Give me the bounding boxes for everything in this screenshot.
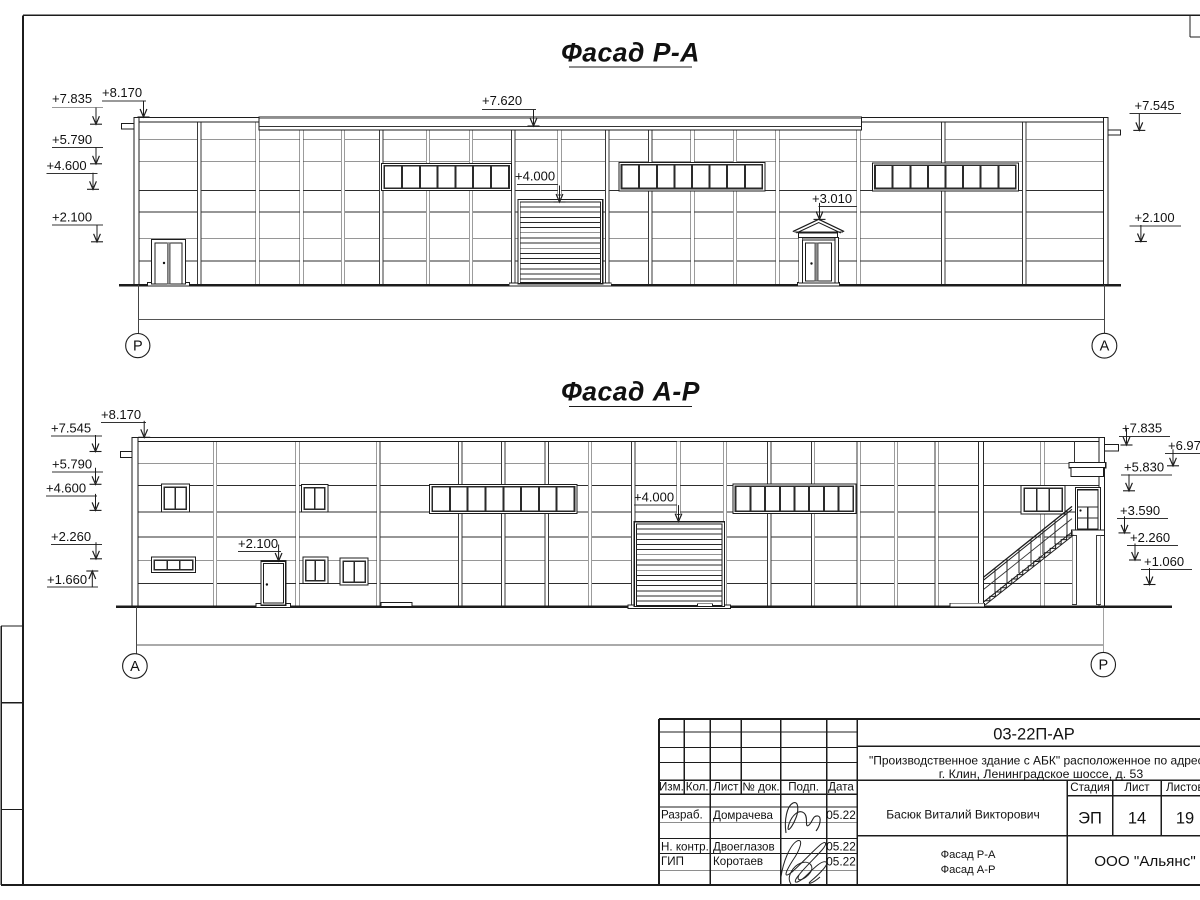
svg-text:Изм.: Изм. xyxy=(659,781,684,794)
svg-text:+4.000: +4.000 xyxy=(634,490,674,505)
svg-text:+3.010: +3.010 xyxy=(812,191,852,206)
svg-text:+2.100: +2.100 xyxy=(1135,210,1175,225)
svg-text:+5.790: +5.790 xyxy=(52,132,92,147)
svg-text:+7.545: +7.545 xyxy=(1135,98,1175,113)
svg-text:Стадия: Стадия xyxy=(1070,781,1110,794)
svg-text:05.22: 05.22 xyxy=(826,839,856,853)
svg-text:"Производственное здание с АБК: "Производственное здание с АБК" располож… xyxy=(869,754,1200,768)
svg-text:Фасад А-Р: Фасад А-Р xyxy=(941,864,996,876)
svg-text:Кол.: Кол. xyxy=(686,781,709,794)
svg-text:+7.545: +7.545 xyxy=(51,421,91,436)
svg-text:+7.835: +7.835 xyxy=(52,91,92,106)
svg-text:+7.835: +7.835 xyxy=(1122,421,1162,436)
svg-text:Листов: Листов xyxy=(1166,781,1200,794)
svg-text:Лист: Лист xyxy=(713,781,739,794)
svg-text:+5.830: +5.830 xyxy=(1124,460,1164,475)
svg-text:03-22П-АР: 03-22П-АР xyxy=(993,726,1075,744)
svg-text:+2.100: +2.100 xyxy=(238,536,278,551)
svg-text:+2.100: +2.100 xyxy=(52,210,92,225)
svg-text:Подп.: Подп. xyxy=(788,781,819,794)
svg-text:+4.600: +4.600 xyxy=(46,481,86,496)
svg-text:05.22: 05.22 xyxy=(826,855,856,869)
svg-text:г. Клин, Ленинградское шоссе,: г. Клин, Ленинградское шоссе, д. 53 xyxy=(939,767,1144,781)
svg-text:ГИП: ГИП xyxy=(661,855,684,868)
svg-text:19: 19 xyxy=(1176,810,1194,828)
svg-text:Фасад Р-А: Фасад Р-А xyxy=(941,849,996,861)
svg-text:ЭП: ЭП xyxy=(1078,810,1102,828)
svg-text:А: А xyxy=(130,659,140,675)
svg-text:Р: Р xyxy=(133,339,143,355)
svg-text:+3.590: +3.590 xyxy=(1120,503,1160,518)
svg-text:+8.170: +8.170 xyxy=(102,85,142,100)
svg-text:Разраб.: Разраб. xyxy=(661,808,703,821)
svg-text:+4.000: +4.000 xyxy=(515,169,555,184)
svg-text:Р: Р xyxy=(1098,658,1108,674)
svg-text:+1.060: +1.060 xyxy=(1144,554,1184,569)
svg-text:+1.660: +1.660 xyxy=(47,572,87,587)
svg-text:Фасад Р-А: Фасад Р-А xyxy=(561,38,700,68)
svg-text:+2.260: +2.260 xyxy=(1130,530,1170,545)
svg-text:Лист: Лист xyxy=(1124,781,1150,794)
svg-text:Дата: Дата xyxy=(828,781,854,794)
svg-text:05.22: 05.22 xyxy=(826,808,856,822)
svg-text:№ док.: № док. xyxy=(742,781,779,794)
svg-text:Домрачева: Домрачева xyxy=(713,809,774,822)
svg-text:Н. контр.: Н. контр. xyxy=(661,840,709,853)
svg-text:Басюк Виталий Викторович: Басюк Виталий Викторович xyxy=(886,808,1039,822)
svg-text:А: А xyxy=(1100,339,1110,355)
svg-text:Коротаев: Коротаев xyxy=(713,855,763,868)
svg-text:Двоеглазов: Двоеглазов xyxy=(713,840,775,853)
svg-text:14: 14 xyxy=(1128,810,1146,828)
svg-text:Фасад А-Р: Фасад А-Р xyxy=(561,377,700,407)
svg-text:+5.790: +5.790 xyxy=(52,457,92,472)
svg-text:ООО "Альянс": ООО "Альянс" xyxy=(1094,853,1196,870)
svg-text:+4.600: +4.600 xyxy=(47,158,87,173)
svg-text:+8.170: +8.170 xyxy=(101,407,141,422)
svg-text:+7.620: +7.620 xyxy=(482,93,522,108)
svg-text:+2.260: +2.260 xyxy=(51,529,91,544)
